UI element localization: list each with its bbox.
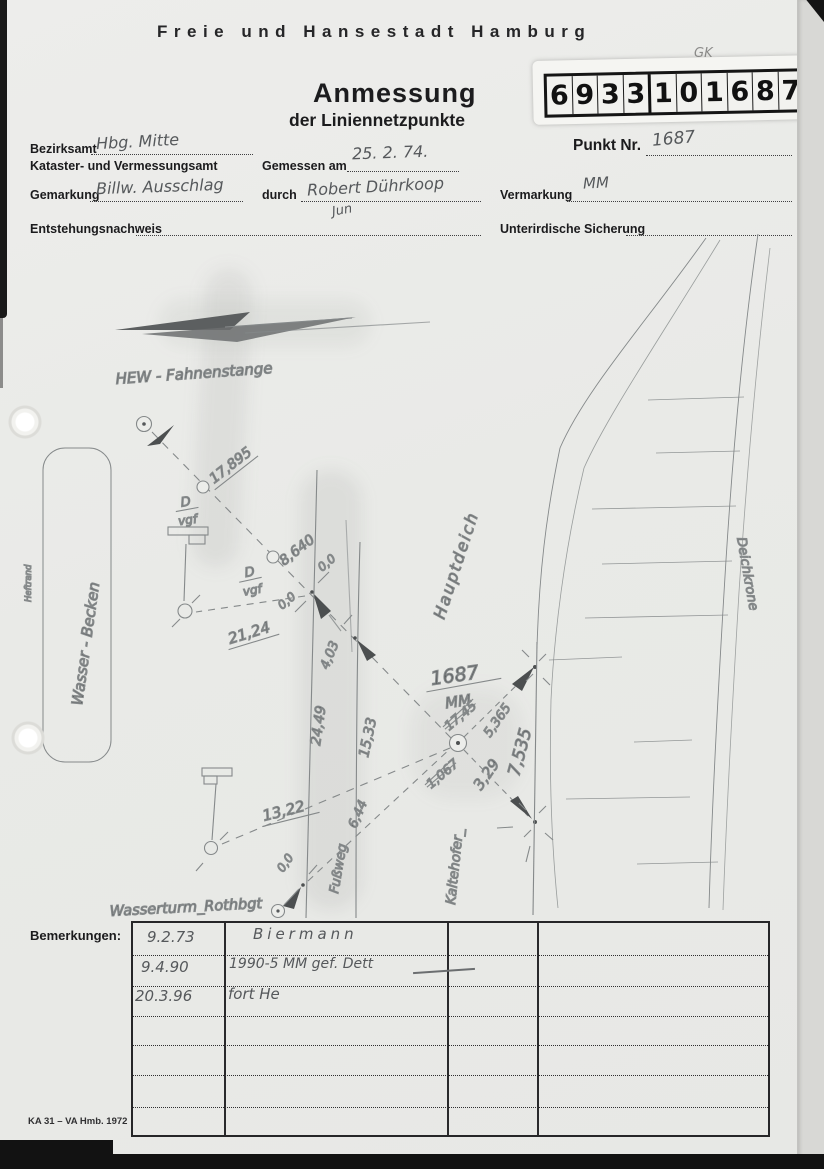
path-line	[346, 520, 352, 652]
measure-8640: 8,640	[277, 532, 319, 569]
table-row-line	[133, 1045, 768, 1046]
line-point	[197, 481, 209, 493]
punch-hole	[7, 717, 49, 759]
central-point-1687	[450, 735, 467, 752]
hew-distance: 17,895	[204, 443, 258, 490]
remark-text: fort He	[228, 985, 280, 1003]
svg-text:vgf: vgf	[177, 511, 199, 528]
d-vgf-mark-2: D vgf	[237, 563, 265, 599]
heftrand-label: Heftrand	[24, 564, 34, 602]
bemerkungen-label: Bemerkungen:	[30, 928, 121, 943]
remark-date: 9.4.90	[141, 958, 189, 976]
wasser-becken-label: Wasser - Becken	[68, 581, 103, 707]
svg-text:vgf: vgf	[242, 581, 265, 598]
survey-point-a	[295, 572, 341, 631]
measure-2124: 21,24	[223, 616, 279, 650]
measure-7535: 7,535	[505, 726, 537, 778]
survey-point-v2	[344, 615, 376, 661]
fussweg-edge-line	[356, 542, 360, 918]
svg-text:17,895: 17,895	[207, 444, 256, 487]
hauptdeich-label: Hauptdeich	[430, 509, 483, 621]
point-number-label: 1687	[429, 662, 480, 691]
scan-margin	[797, 0, 824, 1169]
zero-label: 0,0	[315, 551, 339, 574]
measure-403: 4,03	[318, 639, 343, 671]
deich-hatching	[549, 397, 744, 864]
kaltehofer-label: Kaltehofer_	[443, 828, 467, 906]
fussweg-label: Fußweg	[327, 843, 351, 895]
table-row-line	[133, 1107, 768, 1108]
north-arrow	[115, 312, 430, 342]
remark-text: 1990-5 MM gef. Dett	[229, 956, 373, 972]
remark-date: 9.2.73	[147, 928, 195, 946]
hew-point	[137, 417, 175, 447]
measure-1322: 13,22	[258, 794, 320, 827]
scan-edge	[0, 0, 7, 318]
remark-date: 20.3.96	[135, 987, 192, 1005]
svg-text:8,640: 8,640	[277, 532, 319, 569]
table-row-line	[133, 1075, 768, 1076]
deich-line	[533, 642, 537, 915]
zero-label: 0,0	[275, 589, 299, 612]
measure-1067-crossed: 1,067	[422, 756, 462, 793]
measure-line-1322	[222, 748, 450, 844]
scan-edge	[0, 318, 3, 388]
measure-1533: 15,33	[356, 716, 380, 759]
arrowhead	[512, 667, 534, 691]
pipeline-symbol	[196, 768, 232, 871]
punch-hole	[4, 401, 46, 443]
d-vgf-mark-1: D vgf	[174, 493, 201, 528]
table-row-line	[133, 1016, 768, 1017]
scanned-form-page: Freie und Hansestadt Hamburg Anmessung d…	[0, 0, 824, 1169]
wasser-becken-outline	[43, 448, 111, 762]
survey-point-b	[272, 865, 318, 918]
form-id: KA 31 – VA Hmb. 1972	[28, 1116, 127, 1127]
measure-line-hew	[152, 432, 453, 740]
deichkrone-label: Deichkrone	[733, 536, 761, 612]
bemerkungen-table: 9.2.73 Biermann 9.4.90 1990-5 MM gef. De…	[131, 921, 770, 1137]
deich-curve	[537, 238, 706, 648]
measure-line	[308, 747, 452, 881]
scan-edge	[0, 1154, 824, 1169]
arrowhead	[510, 796, 532, 819]
pipeline-symbol	[168, 527, 208, 627]
measure-5365: 5,365	[481, 701, 515, 740]
hew-label: HEW - Fahnenstange	[115, 359, 273, 388]
signature-flourish	[413, 968, 475, 974]
deich-curve	[550, 240, 720, 908]
zero-label: 0,0	[274, 851, 297, 875]
remark-text: Biermann	[253, 925, 358, 943]
wasserturm-label: Wasserturm_Rothbgt	[109, 896, 263, 920]
svg-text:D: D	[180, 494, 192, 510]
